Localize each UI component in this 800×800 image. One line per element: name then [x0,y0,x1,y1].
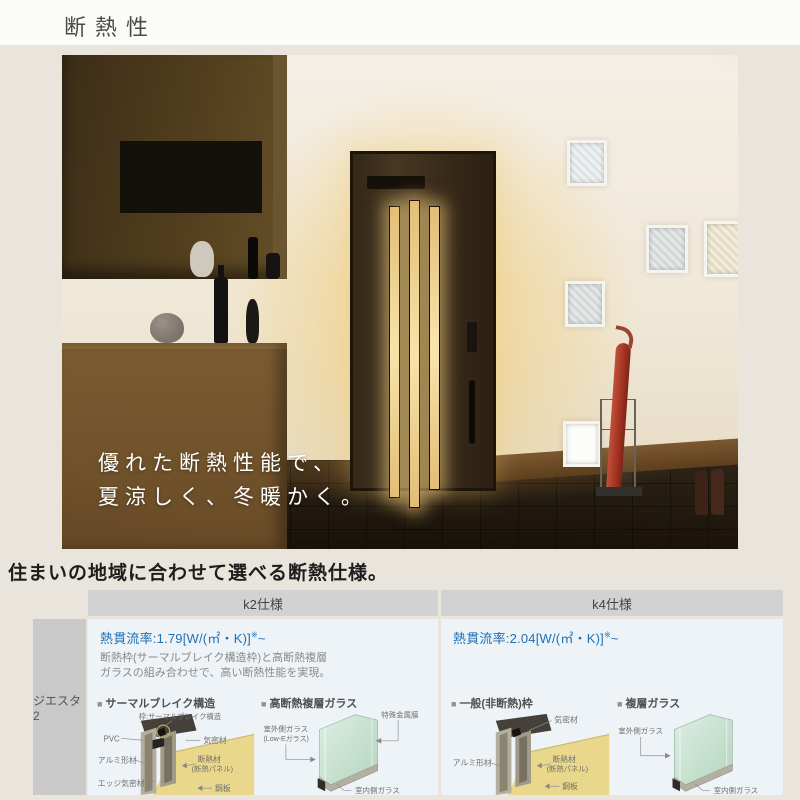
label-steel-plate: 鋼板 [215,783,231,793]
spec-cell-k4: 熱貫流率:2.04[W/(㎡・K)]※~ ■一般(非断熱)枠 ■複層ガラス 気密… [441,619,783,795]
label-aluminum: アルミ形材 [98,755,137,765]
label-insulation-panel: (断熱パネル) [192,765,233,774]
column-header-k2: k2仕様 [88,590,438,616]
low-e-glass-diagram: 特殊金属膜 室外側ガラス (Low-Eガラス) 室内側ガラス [256,709,428,795]
label-aluminum: アルミ形材 [453,758,492,768]
bullet-icon: ■ [261,699,266,709]
u-value-k4-footnote-mark: ※ [604,631,611,640]
u-value-k4-tail: ~ [611,631,619,646]
section-heading: 住まいの地域に合わせて選べる断熱仕様。 [8,558,388,585]
label-insulation-panel: (断熱パネル) [547,765,588,774]
label-airtight: 気密材 [203,735,227,745]
spec-description-k2: 断熱枠(サーマルブレイク構造枠)と高断熱複層 ガラスの組み合わせで、高い断熱性能… [100,651,330,681]
label-insulation: 断熱材 [197,754,221,764]
u-value-k2-text: 熱貫流率:1.79[W/(㎡・K)] [100,631,251,646]
hero-caption-line2: 夏涼しく、冬暖かく。 [98,481,368,515]
label-outer-glass: 室外側ガラス [618,725,663,735]
non-insulated-frame-diagram: 気密材 アルミ形材 断熱材 (断熱パネル) 鋼板 [449,709,611,795]
hero-caption: 優れた断熱性能で、 夏涼しく、冬暖かく。 [98,447,368,515]
u-value-k2-tail: ~ [258,631,266,646]
label-insulation: 断熱材 [552,754,576,764]
label-low-e-glass: (Low-Eガラス) [263,734,308,743]
bullet-icon: ■ [617,699,622,709]
u-value-k4-text: 熱貫流率:2.04[W/(㎡・K)] [453,631,604,646]
label-inner-glass: 室内側ガラス [355,785,400,795]
label-airtight: 気密材 [554,715,578,725]
spec-cell-k2: 熱貫流率:1.79[W/(㎡・K)]※~ 断熱枠(サーマルブレイク構造枠)と高断… [88,619,438,795]
double-glazing-diagram: 室外側ガラス 室内側ガラス [611,709,777,795]
label-outer-glass: 室外側ガラス [263,723,308,733]
spec-description-k2-line2: ガラスの組み合わせで、高い断熱性能を実現。 [100,666,330,681]
u-value-k2: 熱貫流率:1.79[W/(㎡・K)]※~ [100,628,266,647]
label-edge-seal: エッジ気密材 [98,778,145,788]
u-value-k2-footnote-mark: ※ [251,631,258,640]
u-value-k4: 熱貫流率:2.04[W/(㎡・K)]※~ [453,628,619,647]
label-inner-glass: 室内側ガラス [714,785,759,795]
bullet-icon: ■ [97,699,102,709]
label-frame-structure: 枠:サーマルブレイク構造 [139,712,222,721]
row-label-product: ジエスタ2 [33,619,86,795]
page-title: 断熱性 [64,10,157,42]
label-pvc: PVC [104,734,120,743]
label-steel-plate: 鋼板 [562,781,578,791]
column-header-k4: k4仕様 [441,590,783,616]
thermal-break-frame-diagram: 枠:サーマルブレイク構造 PVC 気密材 アルミ形材 断熱材 (断熱パネル) エ… [94,709,256,795]
label-special-metal-film: 特殊金属膜 [381,709,419,719]
bullet-icon: ■ [451,699,456,709]
spec-description-k2-line1: 断熱枠(サーマルブレイク構造枠)と高断熱複層 [100,651,330,666]
hero-entryway-photo: 優れた断熱性能で、 夏涼しく、冬暖かく。 [62,55,738,549]
hero-caption-line1: 優れた断熱性能で、 [98,447,368,481]
